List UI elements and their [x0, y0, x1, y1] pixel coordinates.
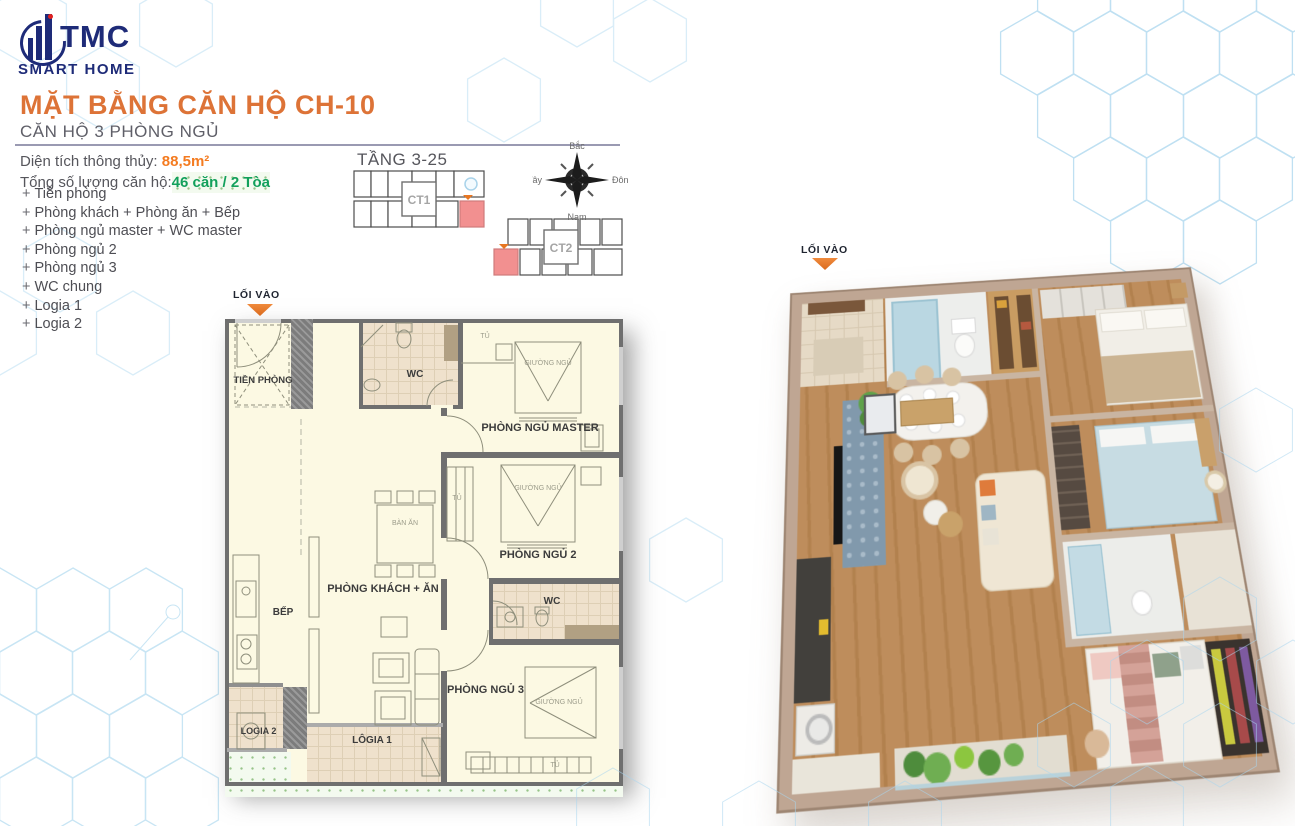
room-label-wc2: WC — [537, 596, 567, 607]
render-door-mat — [813, 337, 863, 376]
floor-plan-3d-render — [779, 269, 1277, 810]
page-title: MẶT BẰNG CĂN HỘ CH-10 — [20, 90, 376, 121]
wardrobe-label: TỦ — [545, 762, 565, 769]
render-tv — [833, 446, 842, 545]
logo-buildings-icon — [28, 14, 62, 64]
render-wall-art — [864, 393, 897, 435]
tower-label: CT1 — [408, 193, 431, 207]
list-item: +Phòng ngủ 3 — [22, 259, 242, 278]
dining-label: BÀN ĂN — [378, 520, 432, 527]
unit-marker-circle — [465, 178, 477, 190]
room-label-logia1: LÔGIA 1 — [335, 735, 409, 746]
highlighted-unit-ct1 — [460, 201, 484, 227]
list-item: +WC chung — [22, 278, 242, 297]
floor-plan-2d: TIỀN PHÒNG WC TỦ GIƯỜNG NGỦ PHÒNG NGỦ MA… — [225, 319, 623, 797]
list-item: +Logia 2 — [22, 315, 242, 334]
tower-label: CT2 — [550, 241, 573, 255]
wardrobe-label: TỦ — [475, 333, 495, 340]
unit-arrow-icon — [499, 244, 509, 249]
bed-label: GIƯỜNG NGỦ — [528, 699, 590, 706]
compass-icon: Bắc Đông Nam Tây — [532, 140, 628, 224]
list-item: +Phòng ngủ 2 — [22, 241, 242, 260]
room-label-living: PHÒNG KHÁCH + ĂN — [318, 583, 448, 595]
entrance-label-3d: LỐI VÀO — [801, 244, 848, 256]
list-item: +Phòng ngủ master + WC master — [22, 222, 242, 241]
bed-label: GIƯỜNG NGỦ — [518, 360, 578, 367]
floor-range-label: TẦNG 3-25 — [357, 150, 447, 170]
logo-dot-icon — [48, 14, 53, 19]
brand-tagline: SMART HOME — [18, 61, 136, 78]
tower-ct1-keyplan: CT1 — [352, 169, 488, 231]
area-value: 88,5m² — [162, 153, 210, 170]
logo: TMC SMART HOME — [16, 12, 186, 82]
list-item: +Tiền phòng — [22, 185, 242, 204]
room-label-bedroom2: PHÒNG NGỦ 2 — [483, 549, 593, 561]
wardrobe-label: TỦ — [447, 495, 467, 502]
room-label-master: PHÒNG NGỦ MASTER — [470, 422, 610, 434]
page: { "header": { "brand": "TMC", "brand_tag… — [0, 0, 1295, 826]
room-label-bedroom3: PHÒNG NGỦ 3 — [433, 684, 538, 696]
list-item: +Logia 1 — [22, 297, 242, 316]
entrance-label-2d: LỐI VÀO — [233, 289, 280, 301]
room-label-logia2: LOGIA 2 — [231, 726, 286, 736]
room-label-kitchen: BẾP — [263, 607, 303, 618]
render-console-table — [900, 397, 954, 426]
render-toilet-tank — [951, 317, 976, 334]
area-line: Diện tích thông thủy: 88,5m² — [20, 151, 350, 172]
bed-label: GIƯỜNG NGỦ — [508, 485, 568, 492]
page-subtitle: CĂN HỘ 3 PHÒNG NGỦ — [20, 122, 219, 142]
tower-ct2-keyplan: CT2 — [492, 217, 626, 279]
compass-south: Nam — [567, 212, 586, 222]
entrance-arrow-icon — [247, 304, 273, 316]
compass-west: Tây — [532, 175, 542, 185]
room-label-wc1: WC — [400, 369, 430, 380]
compass-north: Bắc — [569, 141, 585, 151]
header-divider — [15, 144, 620, 146]
room-label-hall: TIỀN PHÒNG — [231, 375, 295, 386]
brand-name: TMC — [60, 19, 130, 55]
entrance-arrow-icon — [812, 258, 838, 270]
list-item: +Phòng khách + Phòng ăn + Bếp — [22, 204, 242, 223]
room-list: +Tiền phòng +Phòng khách + Phòng ăn + Bế… — [22, 185, 242, 334]
compass-east: Đông — [612, 175, 628, 185]
highlighted-unit-ct2 — [494, 249, 518, 275]
